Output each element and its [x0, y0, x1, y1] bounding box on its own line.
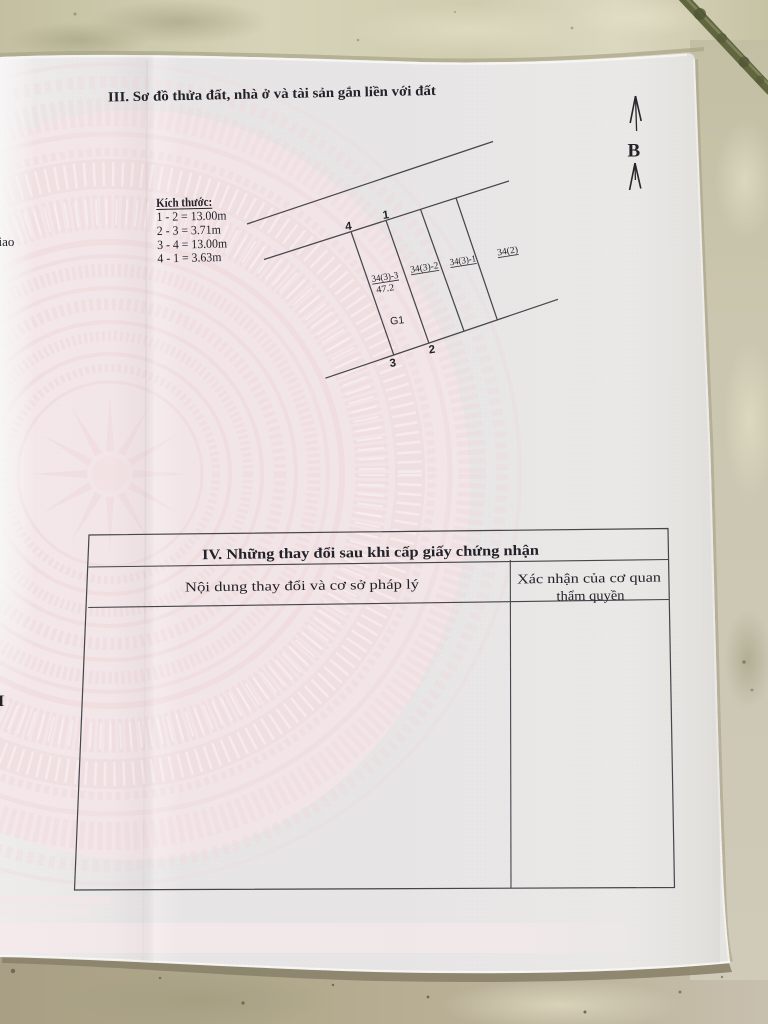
svg-text:Kích thước:: Kích thước: — [156, 195, 212, 210]
svg-text:Nội dung thay đổi và cơ sở phá: Nội dung thay đổi và cơ sở pháp lý — [185, 576, 419, 594]
svg-text:4 - 1 = 3.63m: 4 - 1 = 3.63m — [157, 250, 222, 265]
svg-text:B: B — [628, 141, 641, 162]
svg-text:Xác nhận của cơ quan: Xác nhận của cơ quan — [517, 570, 661, 587]
svg-text:1 - 2 = 13.00m: 1 - 2 = 13.00m — [156, 208, 227, 224]
svg-text:thẩm quyền: thẩm quyền — [556, 588, 624, 604]
svg-text:iao: iao — [0, 234, 14, 249]
svg-text:I: I — [0, 693, 4, 710]
svg-text:G1: G1 — [390, 314, 405, 327]
svg-text:2 - 3 = 3.71m: 2 - 3 = 3.71m — [157, 223, 222, 238]
